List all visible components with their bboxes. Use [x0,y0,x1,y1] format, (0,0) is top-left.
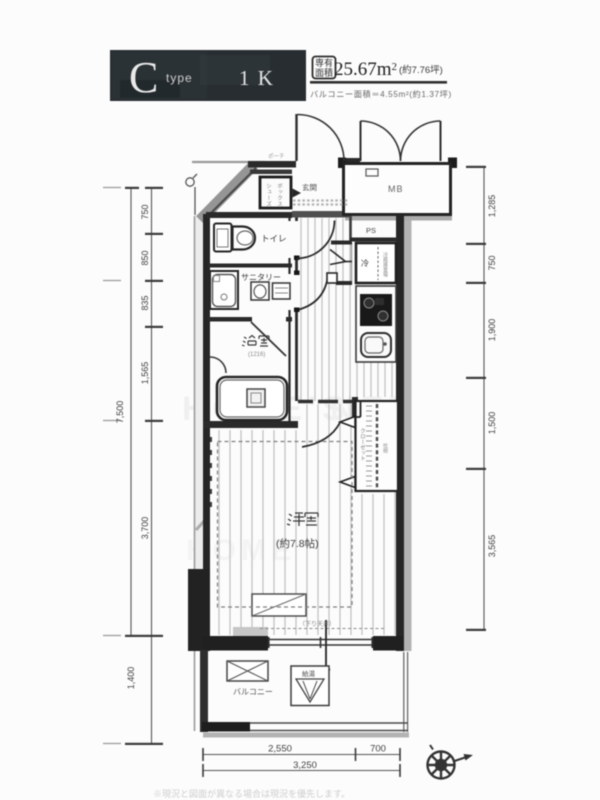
svg-text:1,565: 1,565 [140,362,150,385]
svg-text:給湯: 給湯 [302,669,316,678]
svg-text:MB: MB [388,184,404,194]
svg-text:クローゼット: クローゼット [359,428,366,462]
svg-text:シューズ: シューズ [265,183,272,207]
svg-text:玄関: 玄関 [302,182,317,192]
svg-text:(約7.8帖): (約7.8帖) [276,537,319,550]
svg-text:枕棚: 枕棚 [382,442,388,454]
svg-text:トイレ: トイレ [261,234,287,244]
svg-text:7,500: 7,500 [115,401,125,424]
svg-text:(1216): (1216) [248,352,265,358]
svg-text:700: 700 [370,744,386,755]
svg-text:1,500: 1,500 [487,412,497,435]
svg-text:サニタリー: サニタリー [241,273,281,282]
svg-text:835: 835 [140,295,150,310]
svg-text:1 K: 1 K [239,66,274,90]
svg-text:850: 850 [140,250,150,265]
svg-text:1,285: 1,285 [487,195,497,218]
svg-text:冷蔵庫置場: 冷蔵庫置場 [382,251,388,278]
svg-text:3,250: 3,250 [293,760,317,771]
svg-text:type: type [166,71,193,85]
svg-text:750: 750 [487,255,497,270]
svg-text:専有: 専有 [315,57,333,68]
svg-text:バルコニー面積＝4.55m²(約1.37坪): バルコニー面積＝4.55m²(約1.37坪) [310,89,452,99]
svg-text:（下り天井）: （下り天井） [299,620,335,628]
svg-text:25.67m2: 25.67m2 [334,59,397,80]
svg-text:C: C [129,53,158,102]
svg-text:3,565: 3,565 [487,535,497,558]
svg-text:ボックス: ボックス [276,183,283,207]
svg-text:面積: 面積 [315,67,333,78]
svg-text:2,550: 2,550 [268,744,292,755]
svg-text:(約7.76坪): (約7.76坪) [399,64,443,76]
svg-text:冷: 冷 [361,258,369,268]
svg-text:750: 750 [140,204,150,219]
svg-text:PS: PS [366,226,376,235]
svg-text:バルコニー: バルコニー [233,688,273,697]
svg-text:ポーチ: ポーチ [268,153,285,160]
svg-text:1,900: 1,900 [487,319,497,342]
svg-text:1,400: 1,400 [126,667,136,690]
svg-text:※現況と図面が異なる場合は現況を優先します。: ※現況と図面が異なる場合は現況を優先します。 [153,788,350,799]
svg-text:3,700: 3,700 [140,517,150,540]
